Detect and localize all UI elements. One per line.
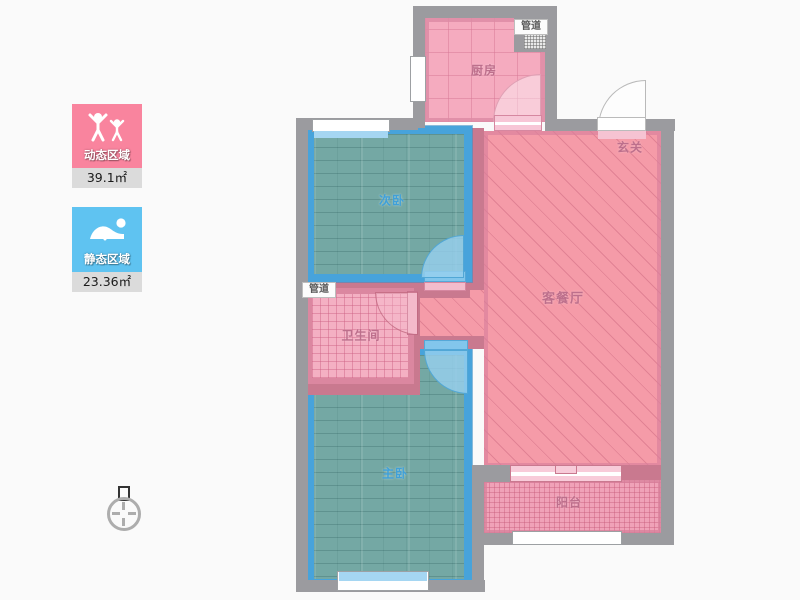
sliding-door-notch [555, 465, 577, 474]
wall-left [296, 118, 308, 592]
legend-static-zone-area: 23.36㎡ [72, 272, 142, 292]
legend-static-zone-card: 静态区域 [72, 207, 142, 272]
label-master-bedroom: 主卧 [382, 465, 408, 482]
compass-tick-e [128, 512, 136, 515]
wall-master-balcony [472, 465, 484, 592]
standing-people-icon [86, 112, 128, 142]
bed2-door-sill [424, 282, 466, 291]
wall-slider-left-seg [484, 465, 511, 482]
legend-dynamic-zone-label: 动态区域 [72, 147, 142, 163]
legend-dynamic-zone-card: 动态区域 [72, 104, 142, 168]
compass-tick-w [112, 512, 120, 515]
label-second-bedroom: 次卧 [379, 192, 405, 209]
label-living-dining: 客餐厅 [542, 288, 584, 307]
legend-static-zone-label: 静态区域 [72, 251, 142, 267]
compass-tick-n [122, 502, 125, 510]
kitchen-door-threshold [494, 115, 542, 131]
label-balcony: 阳台 [556, 494, 582, 511]
window-master-bedroom-sill [339, 572, 427, 581]
pipe-duct-hatch [524, 34, 546, 49]
balcony-sliding-door [510, 465, 622, 482]
wall-bed2-living [470, 128, 484, 290]
wall-right [661, 119, 674, 545]
label-bathroom: 卫生间 [341, 327, 380, 344]
master-door-threshold [424, 340, 468, 350]
compass-tick-s [122, 518, 125, 526]
sleeping-person-icon [85, 215, 129, 243]
label-hallway: 玄关 [617, 139, 643, 156]
window-balcony [512, 531, 622, 545]
window-kitchen [410, 56, 426, 102]
legend-dynamic-zone-area: 39.1㎡ [72, 168, 142, 188]
label-kitchen: 厨房 [471, 62, 497, 79]
pipe-duct-tag-kitchen: 管道 [514, 19, 548, 35]
compass-icon [107, 497, 141, 531]
floorplan-canvas: 管道 管道 厨房 玄关 次卧 客餐厅 卫生间 主卧 阳台 动态区域 39.1㎡ [0, 0, 800, 600]
pipe-duct-tag-bathroom: 管道 [302, 282, 336, 298]
window-second-bedroom-sill [314, 131, 388, 138]
entry-door-threshold [597, 117, 646, 131]
